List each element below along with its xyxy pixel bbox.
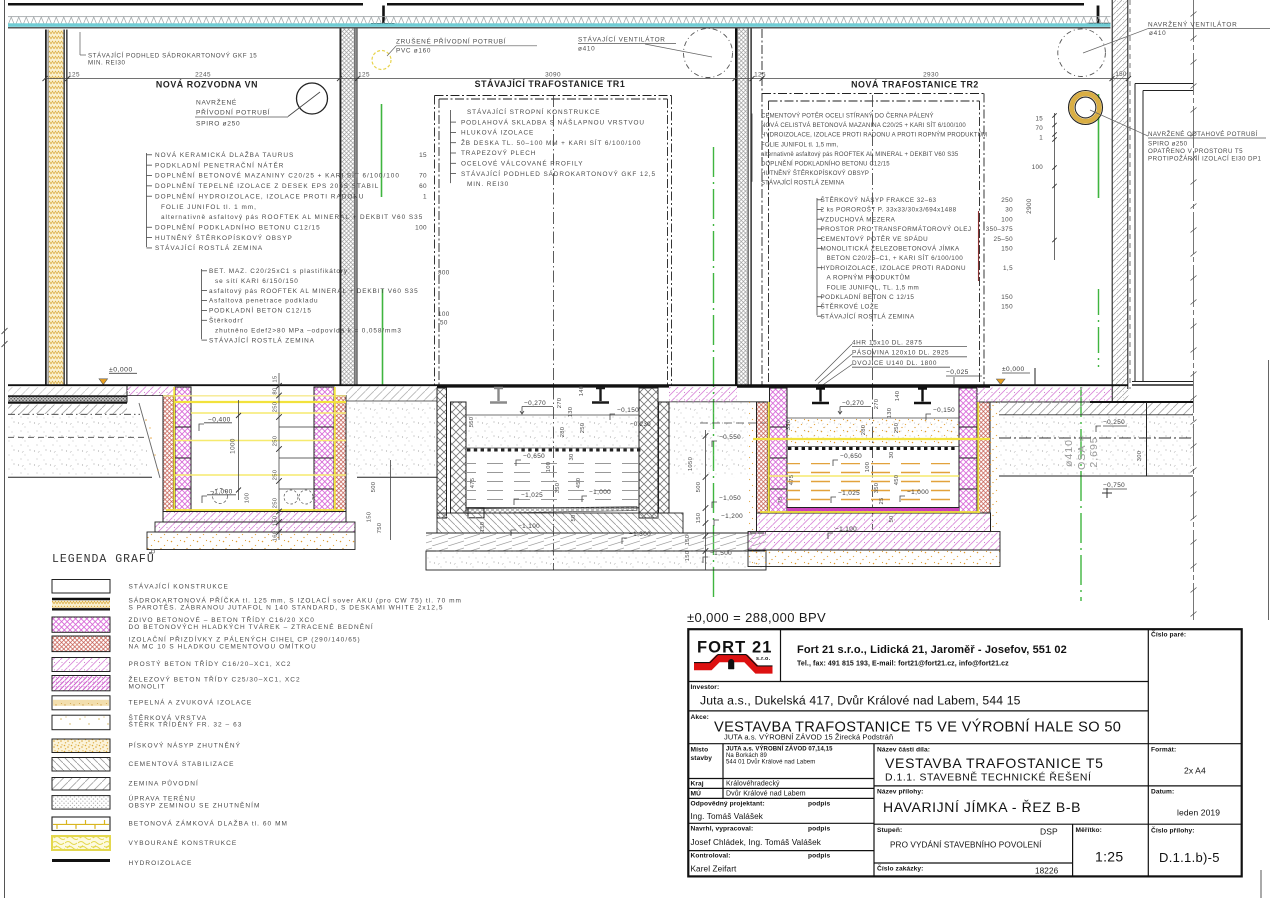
svg-text:Číslo zakázky:: Číslo zakázky: [877, 864, 923, 873]
svg-text:280: 280 [560, 427, 566, 438]
svg-text:50: 50 [571, 514, 577, 521]
svg-text:BET. MAZ. C20/25xC1 s plastifi: BET. MAZ. C20/25xC1 s plastifikátory [209, 268, 348, 275]
svg-text:75: 75 [778, 496, 784, 503]
svg-text:HLUKOVÁ IZOLACE: HLUKOVÁ IZOLACE [461, 128, 534, 137]
svg-text:−1,050: −1,050 [719, 495, 741, 502]
svg-text:stavby: stavby [691, 755, 713, 762]
svg-text:Juta a.s., Dukelská 417, Dvůr: Juta a.s., Dukelská 417, Dvůr Králové na… [700, 694, 1021, 708]
svg-text:ZRUŠENÉ PŘÍVODNÍ POTRUBÍ: ZRUŠENÉ PŘÍVODNÍ POTRUBÍ [396, 37, 506, 46]
svg-text:MIN. REI30: MIN. REI30 [88, 60, 125, 67]
svg-text:125: 125 [358, 72, 370, 79]
svg-text:250: 250 [273, 435, 279, 446]
svg-text:Místo: Místo [691, 747, 709, 754]
svg-text:280: 280 [861, 425, 867, 436]
svg-text:−0,270: −0,270 [842, 400, 864, 407]
svg-text:350: 350 [555, 483, 561, 494]
svg-text:100: 100 [865, 462, 871, 473]
svg-text:Číslo přílohy:: Číslo přílohy: [1151, 826, 1195, 835]
svg-text:300: 300 [1137, 450, 1143, 461]
svg-text:1: 1 [423, 193, 427, 200]
svg-text:100: 100 [415, 224, 427, 231]
svg-text:80: 80 [273, 387, 279, 395]
svg-text:ŠTĚRKOVÉ LOŽE: ŠTĚRKOVÉ LOŽE [821, 302, 879, 311]
svg-text:OBSYP ZEMINOU SE ZHUTNĚNÍM: OBSYP ZEMINOU SE ZHUTNĚNÍM [129, 800, 261, 809]
svg-text:150: 150 [1001, 246, 1013, 253]
svg-text:350–375: 350–375 [986, 226, 1013, 233]
svg-text:NOVÁ TRAFOSTANICE TR2: NOVÁ TRAFOSTANICE TR2 [851, 80, 979, 90]
svg-text:70: 70 [1036, 125, 1044, 132]
svg-text:NAVRŽENÉ ODTAHOVÉ POTRUBÍ: NAVRŽENÉ ODTAHOVÉ POTRUBÍ [1148, 130, 1258, 138]
svg-text:−0,025: −0,025 [946, 369, 969, 376]
svg-text:Investor:: Investor: [691, 684, 720, 691]
svg-text:DOPLNĚNÍ TEPELNÉ IZOLACE Z DES: DOPLNĚNÍ TEPELNÉ IZOLACE Z DESEK EPS 200… [155, 181, 379, 190]
svg-text:500: 500 [371, 481, 377, 492]
svg-text:−0,550: −0,550 [719, 434, 741, 441]
svg-text:Fort 21 s.r.o., Lidická 21, Ja: Fort 21 s.r.o., Lidická 21, Jaroměř - Jo… [797, 644, 1067, 656]
svg-text:−1,500: −1,500 [710, 550, 732, 557]
svg-text:ŠTĚRKOVÝ NÁSYP FRAKCE 32–63: ŠTĚRKOVÝ NÁSYP FRAKCE 32–63 [821, 195, 937, 204]
svg-text:HUTNĚNÝ ŠTĚRKOPÍSKOVÝ OBSYP: HUTNĚNÝ ŠTĚRKOPÍSKOVÝ OBSYP [761, 169, 869, 177]
svg-text:OSA =: OSA = [1076, 434, 1088, 470]
svg-text:NA MC 10 S HLADKOU CEMENTOVOU: NA MC 10 S HLADKOU CEMENTOVOU OMÍTKOU [129, 641, 317, 650]
svg-text:ZDIVO BETONOVÉ – BETON TŘÍDY C: ZDIVO BETONOVÉ – BETON TŘÍDY C16/20 XC0 [129, 615, 315, 624]
svg-text:Dvůr Králové nad Labem: Dvůr Králové nad Labem [726, 790, 806, 798]
svg-text:1:25: 1:25 [1095, 849, 1123, 865]
svg-text:PROSTOR PRO TRANSFORMÁTOROVÝ O: PROSTOR PRO TRANSFORMÁTOROVÝ OLEJ [821, 224, 972, 233]
svg-text:ŠTĚRKOVÁ VRSTVA: ŠTĚRKOVÁ VRSTVA [129, 713, 207, 722]
svg-text:alternativně asfaltový pás ROO: alternativně asfaltový pás ROOFTEK AL MI… [761, 152, 959, 158]
svg-text:50: 50 [889, 515, 895, 522]
svg-text:140: 140 [579, 386, 585, 397]
svg-text:STÁVAJÍCÍ ROSTLÁ ZEMINA: STÁVAJÍCÍ ROSTLÁ ZEMINA [209, 335, 315, 344]
svg-text:MONOLITICKÁ ŽELEZOBETONOVÁ JÍM: MONOLITICKÁ ŽELEZOBETONOVÁ JÍMKA [821, 244, 961, 253]
svg-text:PRO VYDÁNÍ STAVEBNÍHO POVOLENÍ: PRO VYDÁNÍ STAVEBNÍHO POVOLENÍ [890, 840, 1042, 850]
svg-text:Asfaltová penetrace podkladu: Asfaltová penetrace podkladu [209, 298, 318, 305]
svg-text:Datum:: Datum: [1151, 789, 1174, 796]
svg-text:2930: 2930 [923, 72, 939, 79]
svg-text:podpis: podpis [808, 801, 830, 808]
svg-text:PŘÍVODNÍ POTRUBÍ: PŘÍVODNÍ POTRUBÍ [196, 108, 270, 117]
svg-text:Navrhl, vypracoval:: Navrhl, vypracoval: [691, 826, 754, 833]
svg-text:250: 250 [273, 497, 279, 508]
svg-text:STÁVAJÍCÍ TRAFOSTANICE TR1: STÁVAJÍCÍ TRAFOSTANICE TR1 [475, 79, 626, 89]
svg-text:PROSTÝ BETON TŘÍDY C16/20–XC1,: PROSTÝ BETON TŘÍDY C16/20–XC1, XC2 [129, 659, 292, 668]
svg-text:STÁVAJÍCÍ ROSTLÁ ZEMINA: STÁVAJÍCÍ ROSTLÁ ZEMINA [761, 180, 844, 187]
svg-text:Číslo paré:: Číslo paré: [1151, 630, 1186, 639]
svg-text:250: 250 [273, 401, 279, 412]
svg-text:VYBOURANÉ KONSTRUKCE: VYBOURANÉ KONSTRUKCE [129, 838, 238, 847]
svg-text:PÁSOVINA 120x10 DL. 2925: PÁSOVINA 120x10 DL. 2925 [852, 348, 949, 357]
svg-text:150: 150 [1115, 71, 1126, 78]
svg-text:DOPLNĚNÍ HYDROIZOLACE, IZOLACE: DOPLNĚNÍ HYDROIZOLACE, IZOLACE PROTI RAD… [155, 191, 365, 200]
svg-text:270: 270 [557, 398, 563, 409]
svg-text:160: 160 [273, 530, 279, 541]
svg-text:−0,250: −0,250 [1103, 419, 1125, 426]
svg-text:150: 150 [367, 511, 373, 522]
svg-text:PODKLADNÍ BETON C12/15: PODKLADNÍ BETON C12/15 [209, 306, 312, 315]
svg-text:leden 2019: leden 2019 [1177, 808, 1220, 818]
svg-text:PROTIPOŽÁRNÍ IZOLACÍ EI30 DP1: PROTIPOŽÁRNÍ IZOLACÍ EI30 DP1 [1148, 155, 1262, 163]
svg-text:250: 250 [1001, 197, 1013, 204]
svg-text:100: 100 [1032, 164, 1043, 171]
svg-text:STÁVAJÍCÍ VENTILÁTOR: STÁVAJÍCÍ VENTILÁTOR [578, 35, 666, 44]
svg-text:15: 15 [419, 152, 427, 159]
svg-text:VZDUCHOVÁ MEZERA: VZDUCHOVÁ MEZERA [821, 214, 896, 223]
svg-text:100: 100 [1001, 216, 1013, 223]
svg-text:100: 100 [438, 311, 450, 318]
svg-text:750: 750 [377, 522, 383, 533]
svg-text:BETONOVÁ ZÁMKOVÁ DLAŽBA tl. 60: BETONOVÁ ZÁMKOVÁ DLAŽBA tl. 60 MM [129, 819, 289, 828]
svg-text:1,5: 1,5 [1003, 265, 1013, 272]
svg-text:NOVÁ KERAMICKÁ DLAŽBA TAURUS: NOVÁ KERAMICKÁ DLAŽBA TAURUS [155, 150, 294, 159]
svg-text:Na Borkách 89: Na Borkách 89 [726, 753, 768, 759]
svg-text:350: 350 [786, 420, 792, 431]
svg-text:150: 150 [1001, 304, 1013, 311]
svg-text:DO BETONOVÝCH HLADKÝCH TVÁREK: DO BETONOVÝCH HLADKÝCH TVÁREK – ZTRACENÉ… [129, 622, 374, 631]
svg-text:NOVÁ CELISTVÁ BETONOVÁ MAZANIN: NOVÁ CELISTVÁ BETONOVÁ MAZANINA C20/25 +… [761, 122, 966, 129]
svg-text:30: 30 [889, 451, 895, 458]
svg-text:3090: 3090 [545, 72, 561, 79]
svg-text:MIN. REI30: MIN. REI30 [467, 181, 509, 188]
svg-text:−1,300: −1,300 [629, 531, 651, 538]
svg-text:Karel Zeifart: Karel Zeifart [691, 865, 738, 874]
svg-text:544 01 Dvůr Králové nad Labem: 544 01 Dvůr Králové nad Labem [726, 759, 815, 766]
svg-text:Název části díla:: Název části díla: [877, 747, 930, 754]
svg-text:30: 30 [569, 453, 575, 460]
svg-text:HYDROIZOLACE: HYDROIZOLACE [129, 860, 193, 867]
svg-text:2900: 2900 [1026, 198, 1033, 214]
svg-text:Ing. Tomáš Valášek: Ing. Tomáš Valášek [691, 812, 764, 821]
svg-text:100: 100 [245, 492, 251, 503]
svg-text:475: 475 [470, 478, 476, 489]
svg-text:−1,100: −1,100 [835, 526, 857, 533]
svg-text:NAVRŽENÉ: NAVRŽENÉ [196, 98, 237, 107]
svg-text:450: 450 [576, 478, 582, 489]
svg-text:ŽELEZOVÝ BETON TŘÍDY C25/30–XC: ŽELEZOVÝ BETON TŘÍDY C25/30–XC1, XC2 [129, 675, 301, 684]
svg-text:Královéhradecký: Královéhradecký [726, 781, 780, 788]
svg-text:140: 140 [895, 391, 901, 402]
svg-text:Josef Chládek, Ing. Tomáš Valá: Josef Chládek, Ing. Tomáš Valášek [691, 838, 822, 847]
svg-text:CEMENTOVÁ STABILIZACE: CEMENTOVÁ STABILIZACE [129, 759, 235, 768]
svg-text:DOPLNĚNÍ PODKLADNÍHO BETONU C1: DOPLNĚNÍ PODKLADNÍHO BETONU C12/15 [155, 222, 321, 231]
svg-text:CEMENTOVÝ POTĚR OCELI STÍRANÝ: CEMENTOVÝ POTĚR OCELI STÍRANÝ DO ČERNA P… [761, 112, 934, 120]
svg-text:S PAROTĚS. ZÁBRANOU JUTAFOL N: S PAROTĚS. ZÁBRANOU JUTAFOL N 140 STANDA… [129, 602, 444, 611]
svg-text:250: 250 [580, 423, 586, 434]
svg-text:100: 100 [546, 462, 552, 473]
svg-text:2x A4: 2x A4 [1184, 766, 1206, 776]
svg-text:−0,150: −0,150 [933, 407, 955, 414]
svg-text:BETON C20/25–C1, + KARI SÍT 6/: BETON C20/25–C1, + KARI SÍT 6/100/100 [827, 253, 964, 262]
svg-text:OCELOVÉ VÁLCOVANÉ PROFILY: OCELOVÉ VÁLCOVANÉ PROFILY [461, 159, 583, 168]
svg-text:STÁVAJÍCÍ KONSTRUKCE: STÁVAJÍCÍ KONSTRUKCE [129, 581, 229, 590]
svg-text:podpis: podpis [808, 826, 830, 833]
svg-text:STÁVAJÍCÍ STROPNÍ KONSTRUKCE: STÁVAJÍCÍ STROPNÍ KONSTRUKCE [467, 107, 600, 116]
svg-text:MÚ: MÚ [691, 789, 702, 798]
svg-text:130: 130 [568, 407, 574, 418]
svg-text:±0,000 = 288,000 BPV: ±0,000 = 288,000 BPV [687, 610, 826, 625]
svg-text:PÍSKOVÝ NÁSYP ZHUTNĚNÝ: PÍSKOVÝ NÁSYP ZHUTNĚNÝ [129, 741, 242, 750]
svg-text:PODKLADNÍ PENETRAČNÍ NÁTĚR: PODKLADNÍ PENETRAČNÍ NÁTĚR [155, 160, 284, 169]
svg-text:SPIRO ø250: SPIRO ø250 [196, 121, 240, 128]
svg-text:SPIRO ø250: SPIRO ø250 [1148, 141, 1188, 148]
svg-text:TRAPEZOVÝ PLECH: TRAPEZOVÝ PLECH [461, 148, 536, 157]
svg-text:NOVÁ ROZVODNA VN: NOVÁ ROZVODNA VN [156, 80, 258, 90]
svg-text:25–50: 25–50 [993, 236, 1013, 243]
svg-text:ÚPRAVA TERÉNU: ÚPRAVA TERÉNU [129, 794, 196, 803]
svg-text:300: 300 [438, 270, 450, 277]
svg-text:Odpovědný projektant:: Odpovědný projektant: [691, 801, 765, 808]
svg-text:JUTA a.s. VÝROBNÍ ZÁVOD 15 Žir: JUTA a.s. VÝROBNÍ ZÁVOD 15 Žirecká Podst… [724, 733, 893, 742]
svg-text:−0,230: −0,230 [630, 421, 651, 428]
svg-text:OPATŘENO V PROSTORU T5: OPATŘENO V PROSTORU T5 [1148, 147, 1243, 155]
svg-text:HYDROIZOLACE, IZOLACE PROTI RA: HYDROIZOLACE, IZOLACE PROTI RADONU [821, 265, 966, 272]
svg-text:500: 500 [696, 481, 702, 492]
svg-text:−0,650: −0,650 [840, 453, 862, 460]
svg-text:50: 50 [440, 320, 448, 327]
svg-text:JUTA a.s. VÝROBNÍ ZÁVOD 07,14,: JUTA a.s. VÝROBNÍ ZÁVOD 07,14,15 [726, 745, 833, 753]
svg-text:ø410: ø410 [1063, 439, 1075, 467]
svg-text:±0,000: ±0,000 [1002, 366, 1025, 373]
svg-text:FOLIE JUNIFOL tl. 1,5 mm,: FOLIE JUNIFOL tl. 1,5 mm, [761, 142, 838, 148]
svg-text:−1,025: −1,025 [838, 490, 860, 497]
svg-text:FOLIE JUNIFOL tl. 1 mm,: FOLIE JUNIFOL tl. 1 mm, [161, 204, 257, 211]
svg-text:DSP: DSP [1040, 827, 1058, 837]
svg-text:DOPLNĚNÍ BETONOVÉ MAZANINY C20: DOPLNĚNÍ BETONOVÉ MAZANINY C20/25 + KARI… [155, 171, 400, 180]
svg-text:150: 150 [696, 512, 702, 523]
svg-text:IZOLAČNÍ PŘIZDÍVKY Z PÁLENÝCH: IZOLAČNÍ PŘIZDÍVKY Z PÁLENÝCH CIHEL CP (… [129, 635, 361, 644]
svg-text:ŽB DESKA TL. 50–100 MM + KARI: ŽB DESKA TL. 50–100 MM + KARI SÍT 6/100/… [461, 138, 641, 147]
svg-text:150: 150 [480, 522, 486, 533]
svg-text:A ROPNÝM PRODUKTŮM: A ROPNÝM PRODUKTŮM [827, 273, 911, 282]
svg-text:18226: 18226 [1035, 867, 1059, 876]
svg-text:DOPLNĚNÍ PODKLADNÍHO BETONU C1: DOPLNĚNÍ PODKLADNÍHO BETONU C12/15 [761, 160, 890, 168]
svg-text:HAVARIJNÍ JÍMKA - ŘEZ B-B: HAVARIJNÍ JÍMKA - ŘEZ B-B [883, 799, 1081, 815]
svg-text:CEMENTOVÝ POTĚR VE SPÁDU: CEMENTOVÝ POTĚR VE SPÁDU [821, 234, 929, 243]
svg-text:Měřítko:: Měřítko: [1076, 827, 1102, 834]
svg-text:125: 125 [68, 72, 80, 79]
svg-text:130: 130 [887, 408, 893, 419]
svg-text:TEPELNÁ A ZVUKOVÁ IZOLACE: TEPELNÁ A ZVUKOVÁ IZOLACE [129, 698, 253, 707]
svg-text:Formát:: Formát: [1151, 747, 1176, 754]
svg-text:s.r.o.: s.r.o. [756, 656, 771, 662]
svg-text:−1,200: −1,200 [721, 513, 743, 520]
svg-text:se sítí KARI 6/150/150: se sítí KARI 6/150/150 [215, 278, 299, 285]
svg-text:2,695: 2,695 [1088, 436, 1100, 467]
svg-text:±0,000: ±0,000 [109, 367, 133, 374]
svg-text:SÁDROKARTONOVÁ PŘÍČKA tl. 125: SÁDROKARTONOVÁ PŘÍČKA tl. 125 mm, S IZOL… [129, 596, 463, 605]
svg-text:STÁVAJÍCÍ PODHLED SÁDROKARTONO: STÁVAJÍCÍ PODHLED SÁDROKARTONOVÝ GKF 12,… [461, 169, 656, 178]
svg-text:25: 25 [879, 497, 885, 504]
svg-text:15: 15 [273, 375, 279, 383]
svg-text:Kraj: Kraj [691, 781, 704, 788]
svg-text:125: 125 [754, 72, 766, 79]
svg-text:ø410: ø410 [578, 46, 595, 53]
svg-text:Tel., fax: 491 815 193, E-mail: Tel., fax: 491 815 193, E-mail: fort21@f… [797, 661, 1009, 668]
svg-text:PVC ø160: PVC ø160 [396, 48, 431, 55]
svg-text:STÁVAJÍCÍ PODHLED SÁDROKARTONO: STÁVAJÍCÍ PODHLED SÁDROKARTONOVÝ GKF 15 [88, 53, 257, 60]
svg-text:−1,000: −1,000 [589, 489, 611, 496]
svg-text:HYDROIZOLACE, IZOLACE PROTI RA: HYDROIZOLACE, IZOLACE PROTI RADONU A PRO… [761, 132, 987, 139]
svg-text:150: 150 [1001, 294, 1013, 301]
svg-text:FOLIE JUNIFOL, TL. 1,5 mm: FOLIE JUNIFOL, TL. 1,5 mm [827, 284, 920, 291]
svg-text:LEGENDA GRAFŮ: LEGENDA GRAFŮ [52, 552, 155, 566]
svg-text:−0,650: −0,650 [523, 453, 545, 460]
svg-text:30: 30 [1005, 207, 1013, 214]
svg-text:−0,270: −0,270 [524, 400, 546, 407]
svg-text:1000: 1000 [230, 438, 237, 454]
svg-text:150: 150 [685, 534, 691, 545]
svg-text:NAVRŽENÝ VENTILÁTOR: NAVRŽENÝ VENTILÁTOR [1148, 20, 1237, 29]
svg-text:350: 350 [874, 483, 880, 494]
svg-text:−1,025: −1,025 [521, 492, 543, 499]
svg-text:−1,100: −1,100 [518, 523, 540, 530]
svg-text:2245: 2245 [195, 72, 211, 79]
svg-text:alternativně asfaltový pás ROO: alternativně asfaltový pás ROOFTEK AL MI… [161, 214, 423, 221]
svg-text:−0,750: −0,750 [1103, 482, 1125, 489]
svg-text:ŠTĚRK TŘÍDĚNÝ FR. 32 – 63: ŠTĚRK TŘÍDĚNÝ FR. 32 – 63 [129, 720, 243, 729]
svg-text:Název přílohy:: Název přílohy: [877, 789, 923, 796]
svg-text:Kontroloval:: Kontroloval: [691, 853, 731, 860]
svg-text:60: 60 [419, 183, 427, 190]
svg-text:D.1.1. STAVEBNĚ TECHNICKÉ ŘEŠE: D.1.1. STAVEBNĚ TECHNICKÉ ŘEŠENÍ [885, 771, 1091, 784]
svg-text:HUTNĚNÝ ŠTĚRKOPÍSKOVÝ OBSYP: HUTNĚNÝ ŠTĚRKOPÍSKOVÝ OBSYP [155, 233, 293, 242]
svg-text:podpis: podpis [808, 853, 830, 860]
svg-text:ZEMINA PŮVODNÍ: ZEMINA PŮVODNÍ [129, 779, 199, 788]
svg-text:−1,000: −1,000 [907, 489, 929, 496]
svg-text:550: 550 [469, 417, 475, 428]
svg-text:Akce:: Akce: [691, 714, 709, 721]
svg-text:zhutněno Edef2>80 MPa –odpovíd: zhutněno Edef2>80 MPa –odpovídá k = 0,05… [215, 327, 402, 334]
svg-text:475: 475 [789, 475, 795, 486]
svg-text:2 ks POROROŠT P. 33x33/30x3/69: 2 ks POROROŠT P. 33x33/30x3/694x1488 [821, 205, 957, 214]
svg-text:−0,150: −0,150 [617, 407, 639, 414]
svg-text:Stupeň:: Stupeň: [877, 827, 902, 834]
svg-text:ø410: ø410 [1149, 30, 1166, 37]
svg-text:PODLAHOVÁ SKLADBA S NÁŠLAPNOU: PODLAHOVÁ SKLADBA S NÁŠLAPNOU VRSTVOU [461, 117, 645, 126]
svg-text:PODKLADNÍ BETON C 12/15: PODKLADNÍ BETON C 12/15 [821, 292, 915, 301]
svg-text:MONOLIT: MONOLIT [129, 683, 166, 690]
svg-text:150: 150 [685, 550, 691, 561]
svg-text:DVOJICE U140 DL. 1800: DVOJICE U140 DL. 1800 [852, 360, 937, 367]
svg-text:4HR 15x10 DL. 2875: 4HR 15x10 DL. 2875 [852, 340, 922, 347]
svg-text:250: 250 [273, 469, 279, 480]
svg-text:D.1.1.b)-5: D.1.1.b)-5 [1159, 850, 1220, 865]
svg-text:STÁVAJÍCÍ ROSTLÁ ZEMINA: STÁVAJÍCÍ ROSTLÁ ZEMINA [155, 243, 263, 252]
svg-text:1: 1 [1039, 135, 1043, 142]
svg-text:1050: 1050 [688, 456, 694, 471]
svg-text:150: 150 [273, 515, 279, 526]
svg-text:70: 70 [419, 173, 427, 180]
svg-text:asfaltový pás ROOFTEK AL MINER: asfaltový pás ROOFTEK AL MINERAL + DEKBI… [209, 288, 419, 295]
svg-text:VESTAVBA TRAFOSTANICE T5: VESTAVBA TRAFOSTANICE T5 [885, 755, 1104, 771]
svg-text:STÁVAJÍCÍ ROSTLÁ ZEMINA: STÁVAJÍCÍ ROSTLÁ ZEMINA [821, 311, 916, 320]
svg-text:15: 15 [1036, 116, 1044, 123]
svg-text:Štěrkodrť: Štěrkodrť [209, 316, 244, 325]
svg-text:270: 270 [874, 399, 880, 410]
svg-text:250: 250 [894, 423, 900, 434]
svg-text:450: 450 [894, 475, 900, 486]
svg-text:FORT 21: FORT 21 [697, 639, 773, 657]
